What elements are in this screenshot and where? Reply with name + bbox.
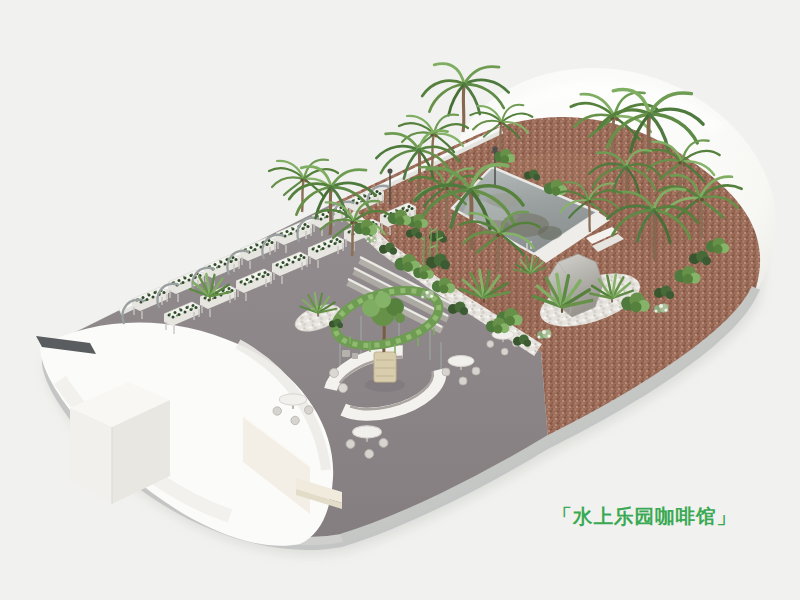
scene-render: 「水上乐园咖啡馆」 — [0, 0, 800, 600]
woven-planter-pot — [374, 352, 396, 382]
render-canvas: 「水上乐园咖啡馆」 — [0, 0, 800, 600]
caption-text: 「水上乐园咖啡馆」 — [553, 505, 738, 528]
